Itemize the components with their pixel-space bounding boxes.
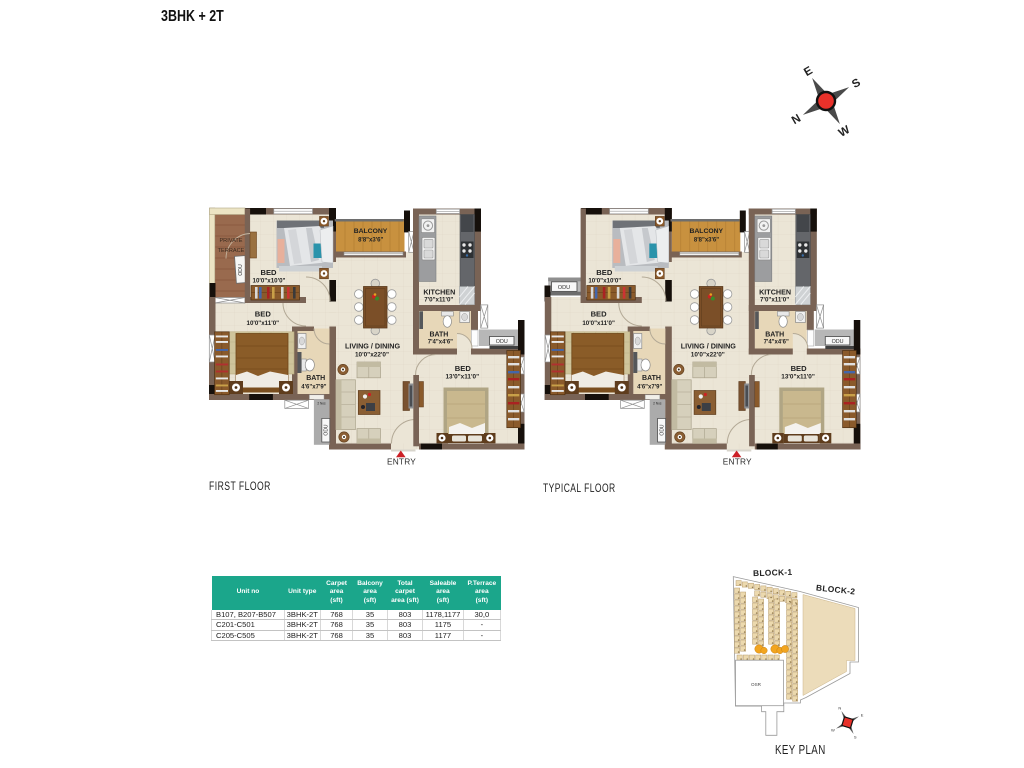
svg-text:10'0"x10'0": 10'0"x10'0" — [588, 278, 621, 285]
svg-text:7'4"x4'6": 7'4"x4'6" — [428, 340, 453, 346]
svg-text:8'8"x3'6": 8'8"x3'6" — [694, 238, 719, 244]
svg-text:7'0"x11'0": 7'0"x11'0" — [424, 297, 453, 304]
svg-text:BATH: BATH — [429, 332, 448, 339]
svg-text:10'0"x11'0": 10'0"x11'0" — [247, 320, 280, 327]
svg-text:2 Nos: 2 Nos — [317, 402, 326, 406]
svg-text:10'0"x22'0": 10'0"x22'0" — [355, 352, 389, 359]
svg-text:S: S — [854, 735, 857, 740]
svg-text:10'0"x10'0": 10'0"x10'0" — [253, 278, 286, 285]
svg-text:10'0"x22'0": 10'0"x22'0" — [691, 352, 725, 359]
svg-text:13'0"x11'0": 13'0"x11'0" — [781, 374, 815, 381]
svg-text:10'0"x11'0": 10'0"x11'0" — [582, 320, 615, 327]
svg-text:2 Nos: 2 Nos — [653, 402, 662, 406]
svg-text:LIVING / DINING: LIVING / DINING — [681, 342, 737, 351]
svg-text:BED: BED — [591, 310, 608, 319]
svg-text:LIVING / DINING: LIVING / DINING — [345, 342, 401, 351]
svg-text:ENTRY: ENTRY — [723, 457, 752, 467]
svg-text:ODU: ODU — [324, 424, 330, 436]
svg-text:BALCONY: BALCONY — [354, 228, 388, 235]
svg-text:7'4"x4'6": 7'4"x4'6" — [764, 340, 789, 346]
svg-text:8'8"x3'6": 8'8"x3'6" — [358, 238, 383, 244]
svg-text:BED: BED — [596, 268, 613, 277]
svg-text:OSR: OSR — [751, 682, 762, 687]
svg-text:13'0"x11'0": 13'0"x11'0" — [445, 374, 479, 381]
svg-text:BED: BED — [260, 268, 277, 277]
svg-text:ODU: ODU — [832, 339, 844, 345]
svg-text:W: W — [837, 124, 853, 140]
svg-text:4'6"x7'9": 4'6"x7'9" — [637, 385, 662, 391]
svg-text:BED: BED — [255, 310, 272, 319]
svg-text:BATH: BATH — [765, 332, 784, 339]
svg-text:KITCHEN: KITCHEN — [759, 288, 791, 297]
svg-text:BALCONY: BALCONY — [689, 228, 723, 235]
svg-text:4'6"x7'9": 4'6"x7'9" — [301, 385, 326, 391]
svg-text:TERRACE: TERRACE — [218, 248, 245, 254]
svg-text:W: W — [831, 728, 835, 733]
svg-text:N: N — [838, 705, 841, 710]
svg-text:BED: BED — [791, 364, 808, 373]
svg-text:PRIVATE: PRIVATE — [219, 238, 242, 244]
svg-text:ODU: ODU — [558, 285, 570, 291]
svg-text:E: E — [861, 712, 864, 717]
svg-text:ENTRY: ENTRY — [387, 457, 416, 467]
svg-text:BED: BED — [455, 364, 472, 373]
svg-text:S: S — [850, 77, 863, 91]
svg-text:E: E — [802, 65, 815, 79]
svg-text:KITCHEN: KITCHEN — [423, 288, 455, 297]
svg-text:BATH: BATH — [306, 375, 325, 382]
svg-text:7'0"x11'0": 7'0"x11'0" — [760, 297, 789, 304]
svg-text:BATH: BATH — [642, 375, 661, 382]
svg-text:BLOCK-1: BLOCK-1 — [753, 567, 793, 578]
svg-text:N: N — [790, 113, 803, 128]
svg-text:ODU: ODU — [238, 264, 244, 276]
svg-text:ODU: ODU — [496, 339, 508, 345]
svg-text:BLOCK-2: BLOCK-2 — [816, 582, 856, 596]
svg-text:ODU: ODU — [659, 424, 665, 436]
